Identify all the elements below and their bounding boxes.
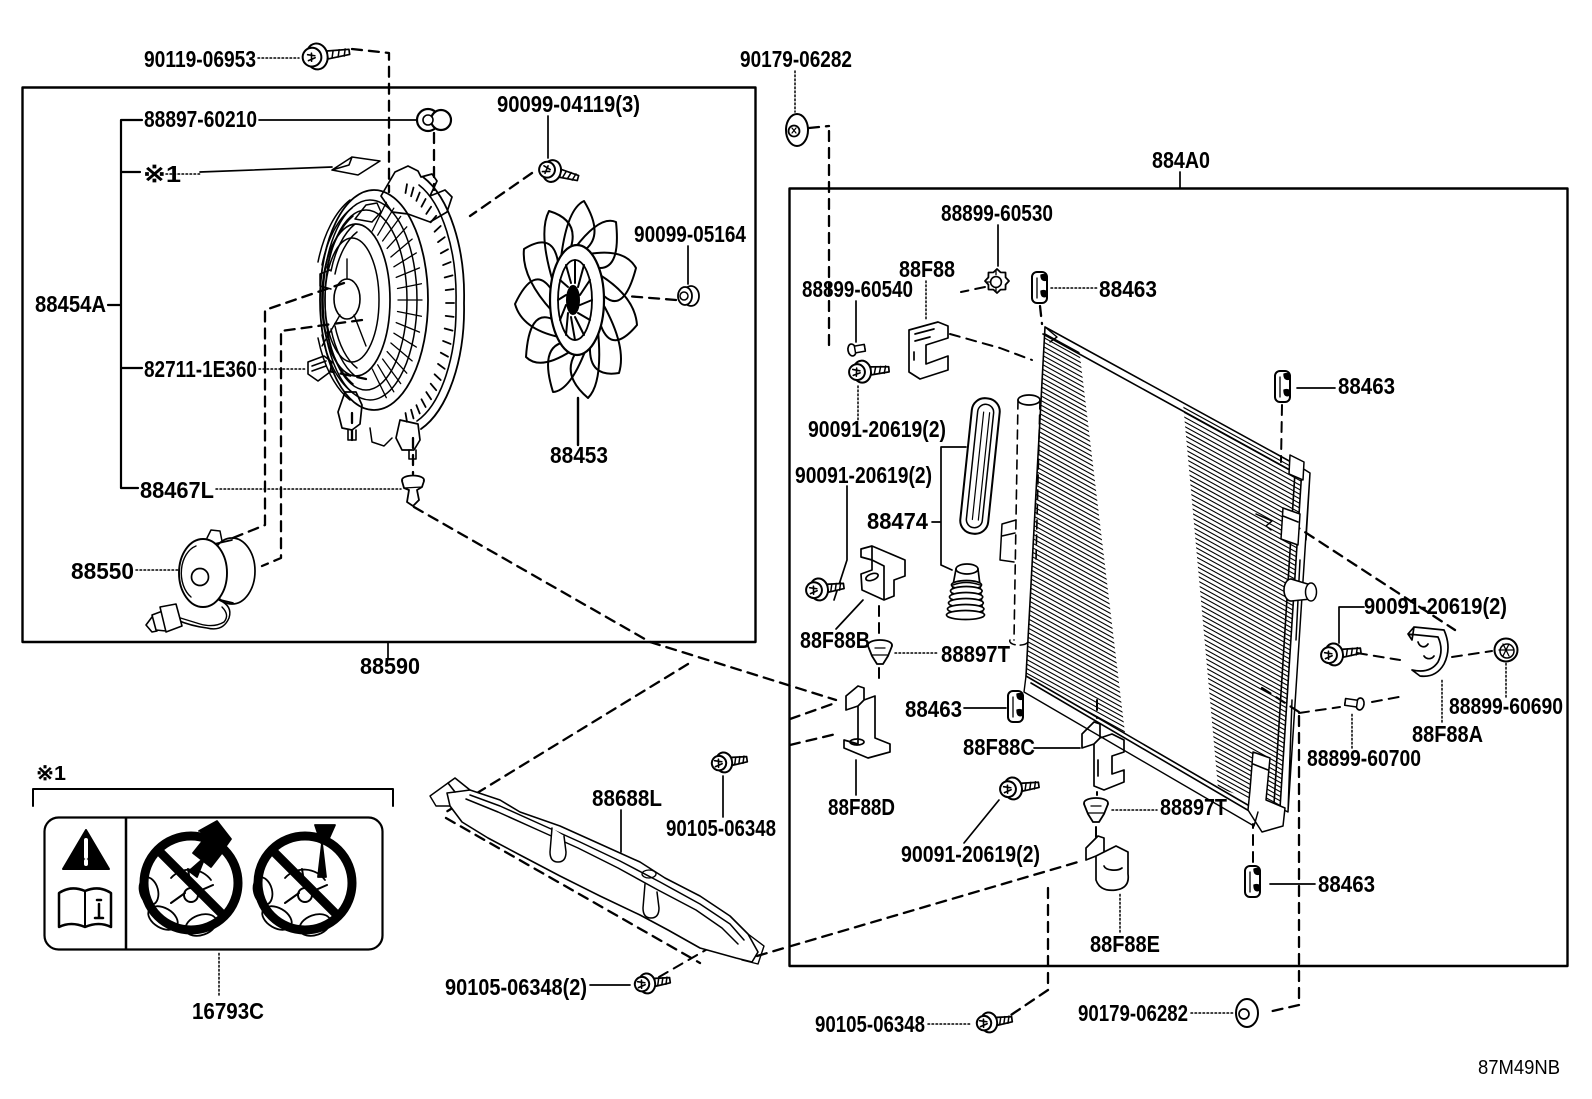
svg-text:90091-20619(2): 90091-20619(2) bbox=[795, 462, 932, 488]
svg-text:88F88A: 88F88A bbox=[1412, 721, 1483, 747]
svg-text:88463: 88463 bbox=[1338, 373, 1395, 399]
svg-text:88463: 88463 bbox=[1099, 276, 1157, 302]
svg-text:88897T: 88897T bbox=[1160, 794, 1227, 820]
svg-text:88463: 88463 bbox=[905, 696, 962, 722]
svg-text:90099-05164: 90099-05164 bbox=[634, 221, 746, 247]
svg-text:※1: ※1 bbox=[36, 763, 66, 785]
svg-text:88F88D: 88F88D bbox=[828, 794, 895, 820]
svg-text:88474: 88474 bbox=[867, 508, 928, 534]
svg-text:88454A: 88454A bbox=[35, 291, 106, 317]
svg-text:88550: 88550 bbox=[71, 558, 134, 584]
svg-text:88F88C: 88F88C bbox=[963, 734, 1035, 760]
svg-text:88897T: 88897T bbox=[941, 641, 1010, 667]
svg-text:90091-20619(2): 90091-20619(2) bbox=[901, 841, 1040, 867]
svg-text:90099-04119(3): 90099-04119(3) bbox=[497, 91, 640, 117]
svg-text:88688L: 88688L bbox=[592, 785, 662, 811]
svg-text:90179-06282: 90179-06282 bbox=[1078, 1000, 1188, 1026]
svg-text:90119-06953: 90119-06953 bbox=[144, 46, 256, 72]
svg-text:88453: 88453 bbox=[550, 442, 608, 468]
svg-text:88899-60530: 88899-60530 bbox=[941, 200, 1053, 226]
svg-text:87M49NB: 87M49NB bbox=[1478, 1057, 1560, 1079]
svg-text:90105-06348(2): 90105-06348(2) bbox=[445, 974, 587, 1000]
svg-text:90091-20619(2): 90091-20619(2) bbox=[808, 416, 946, 442]
svg-text:88899-60540: 88899-60540 bbox=[802, 276, 913, 302]
svg-text:90091-20619(2): 90091-20619(2) bbox=[1364, 593, 1507, 619]
svg-text:90105-06348: 90105-06348 bbox=[666, 815, 776, 841]
svg-text:88463: 88463 bbox=[1318, 871, 1375, 897]
svg-text:88899-60700: 88899-60700 bbox=[1307, 745, 1421, 771]
svg-text:88F88B: 88F88B bbox=[800, 627, 870, 653]
svg-text:88897-60210: 88897-60210 bbox=[144, 106, 257, 132]
svg-text:884A0: 884A0 bbox=[1152, 147, 1210, 173]
svg-text:16793C: 16793C bbox=[192, 998, 264, 1024]
svg-text:88F88E: 88F88E bbox=[1090, 931, 1160, 957]
svg-text:82711-1E360: 82711-1E360 bbox=[144, 356, 257, 382]
svg-text:88590: 88590 bbox=[360, 653, 420, 679]
svg-text:90179-06282: 90179-06282 bbox=[740, 46, 852, 72]
svg-text:88467L: 88467L bbox=[140, 477, 214, 503]
svg-text:90105-06348: 90105-06348 bbox=[815, 1011, 925, 1037]
